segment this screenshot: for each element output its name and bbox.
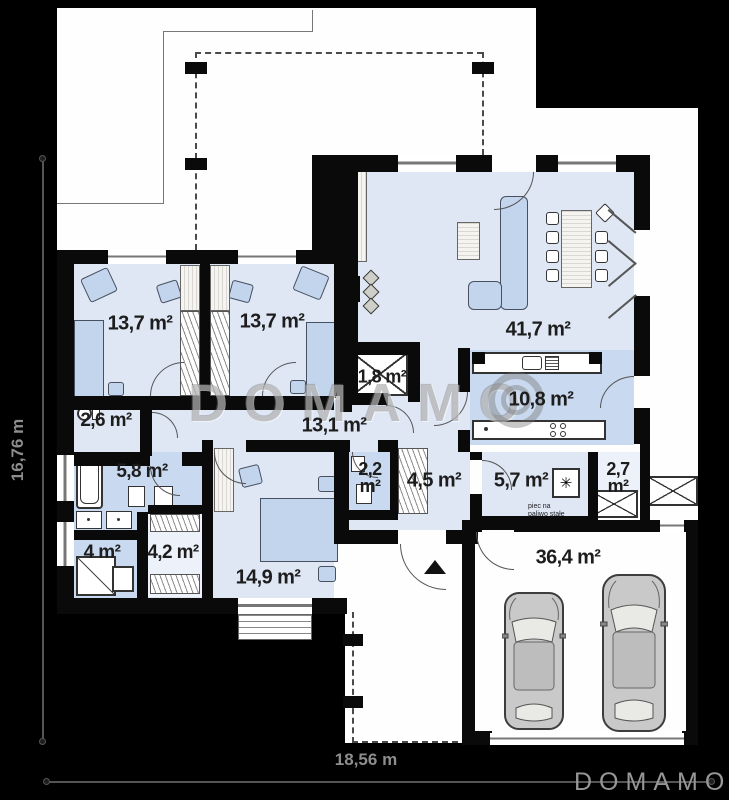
boiler-stove-icon: ✳: [560, 475, 573, 492]
room-label-boiler-room: 5,7 m²: [494, 470, 548, 493]
outdoor-cabinet: [648, 476, 698, 506]
wall: [182, 452, 202, 466]
chair: [595, 269, 608, 282]
boiler-note-line1: piec na: [528, 503, 565, 511]
room-label-wardrobe: 4,2 m²: [147, 542, 198, 564]
chair: [595, 231, 608, 244]
bed: [74, 320, 104, 398]
terrace-edge: [163, 31, 313, 32]
entrance-arrow-icon: [424, 560, 446, 574]
window: [238, 250, 296, 264]
wall: [246, 440, 344, 452]
boiler-stove: ✳: [552, 468, 580, 498]
cooktop-burner: [550, 431, 556, 437]
room-label-bathroom: 5,8 m²: [116, 461, 167, 483]
chair: [595, 250, 608, 263]
wall: [470, 452, 482, 460]
room-label-closet: 1,8 m²: [358, 367, 406, 388]
dish-rack: [545, 356, 559, 370]
room-label-wc: 2,6 m²: [80, 410, 131, 432]
desk: [180, 265, 200, 311]
closet-cabinet: [150, 574, 200, 594]
room-label-bedroom2: 13,7 m²: [240, 311, 305, 334]
window: [398, 155, 456, 172]
cooktop-burner: [560, 423, 566, 429]
dimension-endpoint: [43, 778, 50, 785]
porch-post: [185, 158, 207, 170]
wall: [634, 408, 650, 444]
desk: [210, 265, 230, 311]
closet-cabinet: [150, 514, 200, 532]
window: [558, 155, 616, 172]
terrace-edge: [163, 31, 164, 204]
room-label-wc2: 2,2 m²: [347, 461, 393, 495]
height-dimension-label: 16,76 m: [8, 419, 28, 481]
room-label-bedroom1: 13,7 m²: [108, 313, 173, 336]
wall: [640, 440, 650, 524]
kitchen-sink: [522, 356, 542, 370]
porch-post: [343, 634, 363, 646]
height-dimension-line: [42, 158, 44, 742]
wall: [634, 296, 650, 376]
window: [57, 522, 74, 566]
wall: [334, 530, 398, 544]
window: [108, 250, 166, 264]
chair: [546, 231, 559, 244]
nightstand: [108, 382, 124, 396]
wall: [312, 155, 358, 264]
room-label-entry: 4,5 m²: [407, 470, 461, 493]
boiler-note: piec na paliwo stałe: [528, 503, 565, 519]
wall: [148, 505, 202, 514]
dimension-endpoint: [39, 155, 46, 162]
brand-logo: DOMAMO: [574, 768, 729, 797]
room-label-hallway: 13,1 m²: [302, 415, 367, 438]
wall: [140, 408, 152, 456]
wall: [514, 520, 660, 532]
room-label-kitchen: 10,8 m²: [509, 389, 574, 412]
porch-post: [343, 696, 363, 708]
wall: [682, 731, 698, 745]
terrace-edge: [312, 10, 313, 31]
dining-table: [561, 210, 592, 288]
floor-plan: ✳: [0, 0, 729, 800]
dimension-endpoint: [39, 738, 46, 745]
chair: [546, 269, 559, 282]
wall: [462, 520, 475, 733]
counter-end: [589, 352, 602, 364]
wall: [340, 510, 398, 520]
cooktop-burner: [550, 423, 556, 429]
porch-post: [185, 62, 207, 74]
toilet: [112, 566, 134, 592]
toilet: [128, 486, 145, 507]
window: [238, 598, 312, 614]
wall: [462, 731, 492, 745]
room-label-bedroom3: 14,9 m²: [236, 567, 301, 590]
roof-overhang-line: [352, 612, 354, 743]
sofa: [468, 281, 502, 310]
cooktop-burner: [560, 431, 566, 437]
porch-post: [472, 62, 494, 74]
wall: [202, 440, 213, 598]
car-icon: [600, 572, 668, 734]
wall: [344, 440, 350, 452]
wall: [686, 520, 698, 733]
room-label-pantry: 2,7 m²: [595, 461, 641, 495]
door-opening: [492, 155, 536, 172]
garage-door: [490, 733, 684, 745]
basin-drain: [117, 518, 120, 521]
chair: [546, 250, 559, 263]
room-label-living-room: 41,7 m²: [506, 319, 571, 342]
bathtub-basin: [80, 460, 99, 504]
nightstand: [318, 566, 336, 582]
coffee-table: [457, 222, 480, 260]
width-dimension-label: 18,56 m: [335, 750, 397, 770]
room-label-shower-room: 4 m²: [84, 542, 121, 564]
terrace-steps: [238, 614, 312, 640]
counter-end: [472, 352, 485, 364]
roof-overhang-line: [195, 52, 483, 54]
terrace-edge: [57, 203, 164, 204]
wall: [74, 530, 137, 540]
boiler-note-line2: paliwo stałe: [528, 511, 565, 519]
car-icon: [502, 590, 566, 732]
window: [660, 520, 684, 532]
sofa: [500, 196, 528, 310]
bed: [260, 498, 338, 562]
basin-drain: [87, 518, 90, 521]
chair: [546, 212, 559, 225]
window: [57, 455, 74, 501]
wall: [378, 440, 398, 452]
wall: [634, 172, 650, 230]
roof-overhang-line: [195, 52, 197, 250]
room-label-garage: 36,4 m²: [536, 547, 601, 570]
